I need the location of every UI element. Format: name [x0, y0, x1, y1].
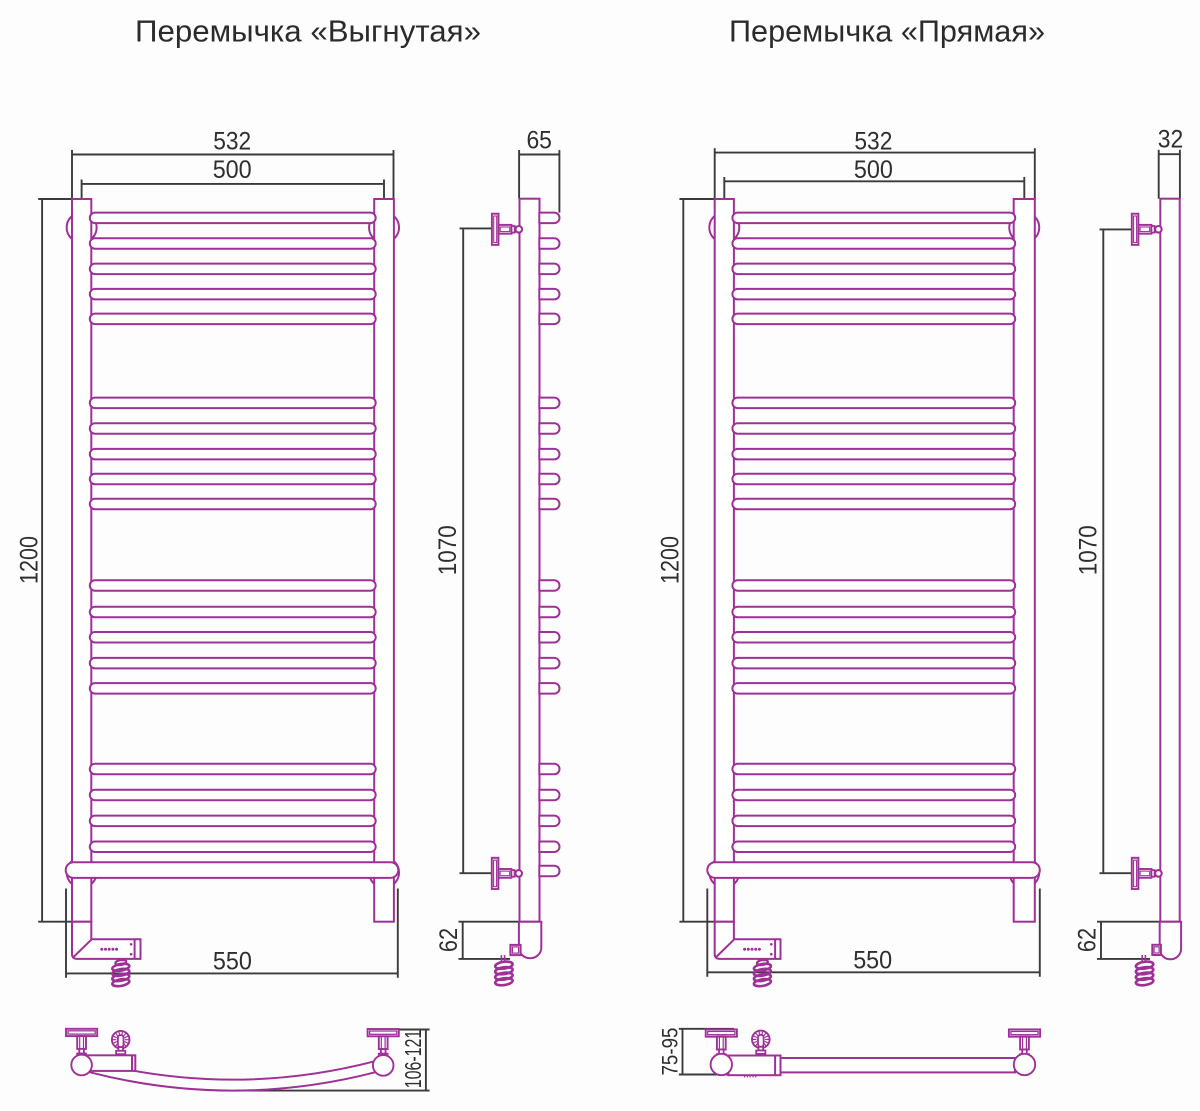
svg-text:1200: 1200	[657, 536, 685, 584]
svg-text:500: 500	[854, 156, 893, 184]
svg-text:Перемычка «Выгнутая»: Перемычка «Выгнутая»	[135, 14, 481, 49]
svg-text:532: 532	[854, 128, 892, 156]
svg-text:62: 62	[1074, 928, 1102, 952]
svg-text:1070: 1070	[434, 525, 462, 575]
svg-text:550: 550	[213, 948, 252, 976]
svg-text:500: 500	[213, 156, 252, 184]
svg-text:75-95: 75-95	[657, 1028, 682, 1076]
svg-text:32: 32	[1158, 126, 1184, 154]
svg-text:62: 62	[435, 928, 463, 952]
svg-text:550: 550	[853, 947, 892, 975]
svg-text:532: 532	[213, 128, 251, 156]
svg-text:Перемычка «Прямая»: Перемычка «Прямая»	[729, 14, 1045, 49]
svg-text:1070: 1070	[1075, 525, 1103, 575]
svg-text:65: 65	[526, 126, 552, 154]
svg-text:106-121: 106-121	[400, 1030, 426, 1089]
svg-text:1200: 1200	[15, 536, 43, 584]
